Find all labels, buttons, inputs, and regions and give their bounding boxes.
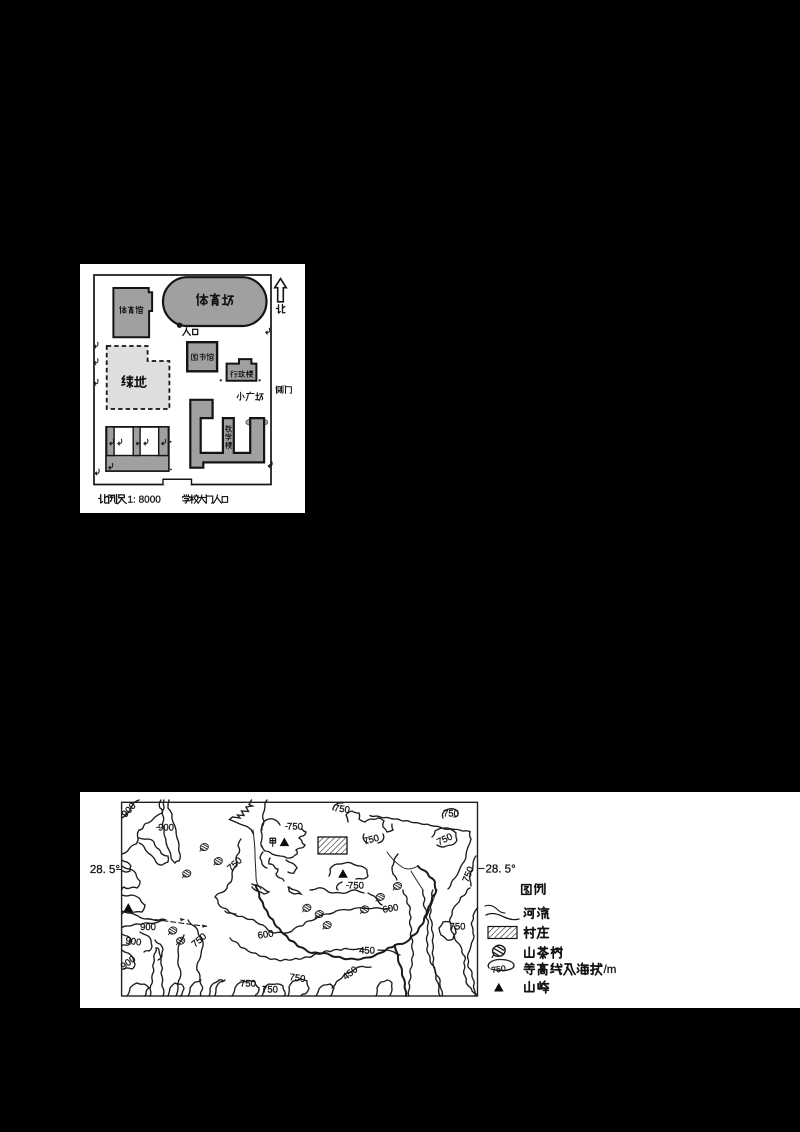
svg-text:750: 750 [443,808,459,819]
svg-text:900: 900 [140,922,156,933]
svg-text:750: 750 [287,821,303,832]
svg-text:750: 750 [262,984,278,995]
svg-text:900: 900 [125,935,142,948]
svg-text:750: 750 [461,865,477,884]
svg-text:600: 600 [382,902,400,916]
svg-text:-: - [346,880,349,891]
svg-text:750: 750 [190,931,209,950]
svg-text:600: 600 [257,928,274,941]
svg-text:750: 750 [240,978,256,989]
svg-text:750: 750 [289,972,306,985]
svg-text:28. 5°: 28. 5° [485,864,515,876]
svg-text:/m: /m [603,964,616,976]
svg-text:900: 900 [158,822,174,833]
svg-text:750: 750 [333,803,350,816]
svg-text:-: - [156,822,159,833]
svg-text:1: 8000: 1: 8000 [127,494,161,505]
svg-text:750: 750 [348,880,364,891]
svg-text:750: 750 [225,855,244,874]
svg-text:450: 450 [359,945,375,956]
svg-text:28. 5°: 28. 5° [90,864,120,876]
svg-text:-: - [285,821,288,832]
svg-text:750: 750 [450,921,466,932]
svg-text:750: 750 [491,963,507,975]
svg-text:750: 750 [362,833,380,848]
